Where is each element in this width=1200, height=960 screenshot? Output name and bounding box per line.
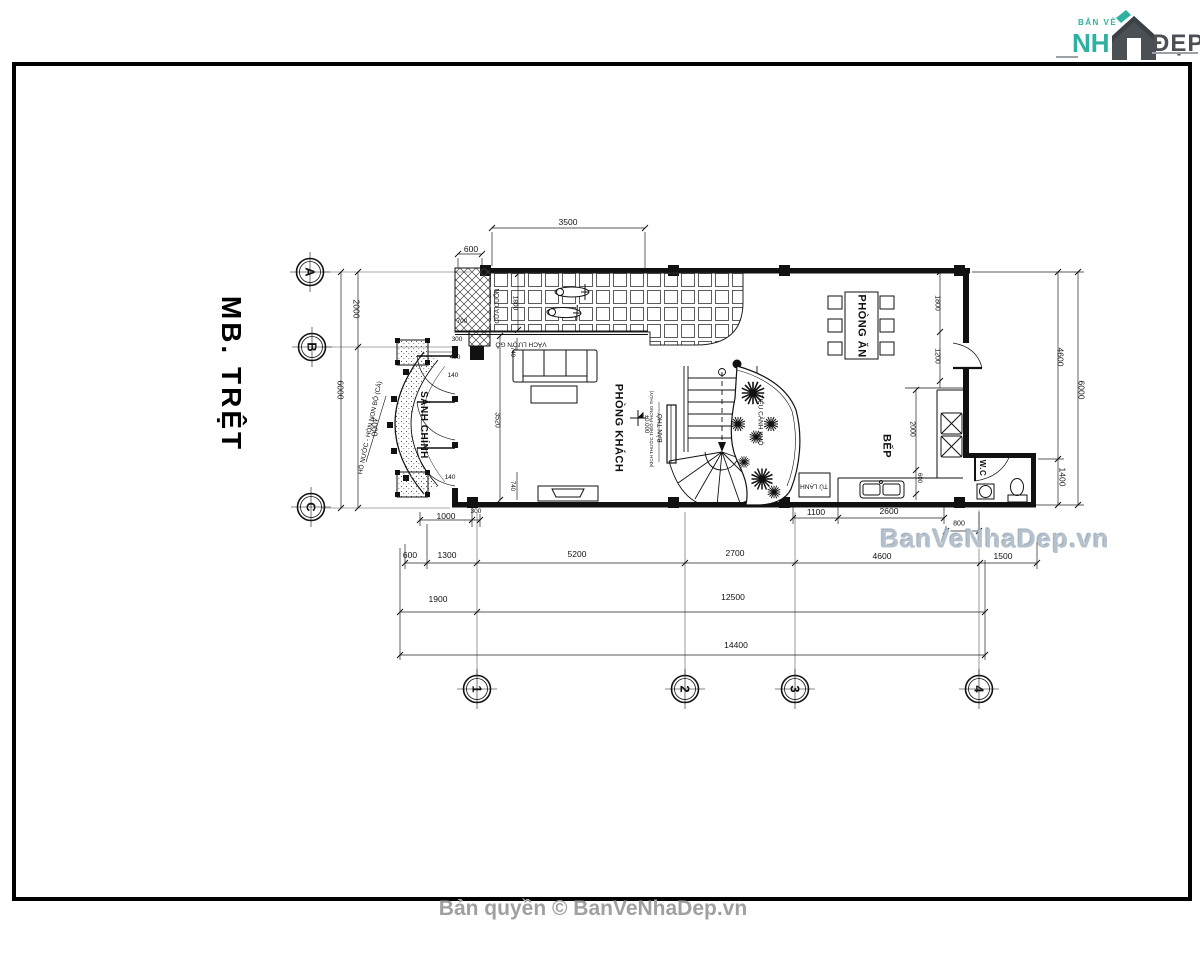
garden — [731, 366, 800, 505]
copyright-text: Bản quyền © BanVeNhaDep.vn — [439, 897, 747, 921]
altar — [659, 402, 676, 463]
wc-fixtures — [975, 455, 1027, 502]
sofa — [513, 350, 597, 403]
porch — [366, 338, 452, 497]
floor-plan-page: BẢN VẼ NH ĐẸP — [0, 0, 1200, 960]
dining-table — [828, 292, 894, 359]
plan-title: MB. TRỆT — [215, 296, 247, 452]
tv-cabinet — [538, 486, 598, 501]
garage-floor — [455, 273, 743, 345]
watermark: BanVeNhaDep.vn — [880, 524, 1109, 555]
level-marker — [630, 410, 646, 426]
dining-door — [953, 343, 982, 368]
plan-drawing — [0, 0, 1200, 960]
kitchen-counter — [799, 388, 963, 502]
